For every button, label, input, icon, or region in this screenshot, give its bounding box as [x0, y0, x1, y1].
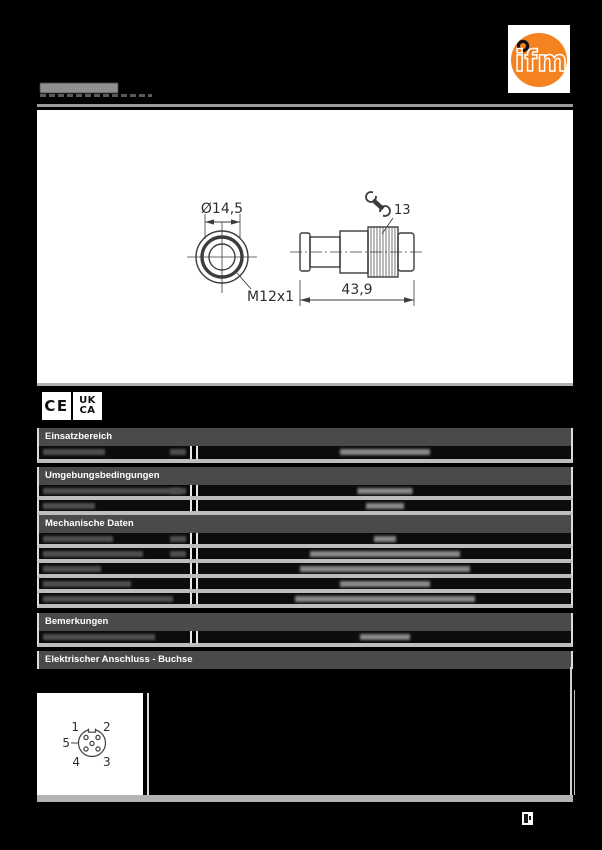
column-divider [190, 446, 198, 459]
ukca-mark-bottom: CA [79, 406, 95, 416]
pin-5-label: 5 [62, 736, 70, 750]
conformity-marks: CE UK CA [42, 392, 102, 420]
row-value-redacted [198, 548, 571, 559]
section-header-einsatzbereich: Einsatzbereich [37, 428, 573, 446]
section-title: Umgebungsbedingungen [45, 470, 160, 481]
pin-3-label: 3 [103, 755, 111, 769]
section-header-bemerkungen: Bemerkungen [37, 613, 573, 631]
datasheet-page: ifm [0, 0, 602, 850]
table-row-redacted [37, 548, 573, 563]
row-value-redacted [198, 446, 571, 459]
table-row-redacted [37, 446, 573, 463]
column-divider [190, 578, 198, 589]
table-row-redacted [37, 578, 573, 593]
row-label-redacted [39, 563, 190, 574]
dim-diameter-label: Ø14,5 [201, 201, 243, 217]
row-value-redacted [198, 593, 571, 604]
section-header-umgebungsbedingungen: Umgebungsbedingungen [37, 467, 573, 485]
row-value-redacted [198, 485, 571, 496]
ifm-logo-text: ifm [515, 44, 568, 78]
spec-table: Einsatzbereich Umgebungsbedingungen Mech… [37, 428, 573, 669]
masthead-divider [37, 104, 573, 107]
product-code-redacted [40, 83, 118, 93]
ifm-logo: ifm [508, 25, 570, 93]
row-label-redacted [39, 533, 190, 544]
socket-pinout-icon: 1 2 5 4 3 [37, 693, 143, 795]
column-divider [190, 593, 198, 604]
row-value-redacted [198, 500, 571, 511]
product-subline-redacted [40, 94, 152, 97]
row-value-redacted [198, 563, 571, 574]
wrench-size-label: 13 [394, 203, 411, 218]
section-header-elektrischer-anschluss: Elektrischer Anschluss - Buchse [37, 651, 573, 669]
table-row-redacted [37, 485, 573, 500]
column-divider [190, 548, 198, 559]
table-row-redacted [37, 593, 573, 608]
technical-drawing-panel: Ø14,5 M12x1 13 43,9 [37, 110, 573, 386]
pin-diagram: 1 2 5 4 3 [37, 693, 143, 795]
wrench-icon [366, 189, 390, 219]
row-label-redacted [39, 500, 190, 511]
column-divider [190, 631, 198, 643]
section-title: Einsatzbereich [45, 431, 112, 442]
pin-1-label: 1 [71, 720, 79, 734]
row-label-redacted [39, 631, 190, 643]
row-label-redacted [39, 578, 190, 589]
section-title: Elektrischer Anschluss - Buchse [45, 654, 192, 665]
column-divider [190, 563, 198, 574]
table-row-redacted [37, 563, 573, 578]
row-value-redacted [198, 578, 571, 589]
column-divider [190, 533, 198, 544]
page-footer-mark [522, 812, 533, 825]
section-title: Bemerkungen [45, 616, 108, 627]
ce-mark: CE [42, 392, 71, 420]
ifm-logo-icon: ifm [508, 25, 570, 93]
row-label-redacted [39, 446, 190, 459]
section-title: Mechanische Daten [45, 518, 134, 529]
row-label-redacted [39, 593, 190, 604]
row-label-redacted [39, 548, 190, 559]
pin-4-label: 4 [72, 755, 80, 769]
table-edge-line [570, 667, 572, 795]
technical-drawing: Ø14,5 M12x1 13 43,9 [37, 110, 573, 380]
row-label-redacted [39, 485, 190, 496]
row-value-redacted [198, 533, 571, 544]
bottom-divider [37, 795, 573, 802]
length-dim-label: 43,9 [341, 282, 372, 298]
table-row-redacted [37, 500, 573, 515]
thread-label: M12x1 [247, 289, 294, 305]
row-value-redacted [198, 631, 571, 643]
ce-mark-label: CE [44, 397, 68, 415]
column-divider [190, 500, 198, 511]
table-edge-line [574, 690, 575, 795]
column-divider [190, 485, 198, 496]
section-header-mechanische-daten: Mechanische Daten [37, 515, 573, 533]
pin-2-label: 2 [103, 720, 111, 734]
table-row-redacted [37, 533, 573, 548]
ukca-mark: UK CA [73, 392, 102, 420]
table-row-redacted [37, 631, 573, 647]
